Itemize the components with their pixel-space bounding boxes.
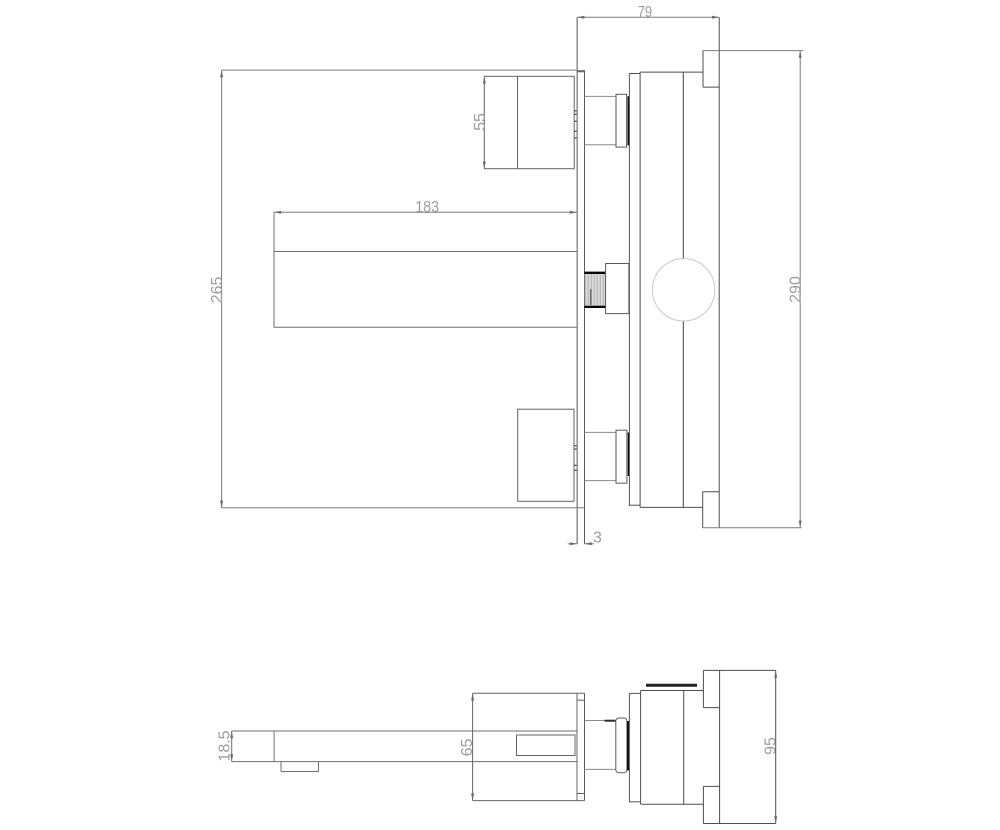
svg-text:79: 79 (638, 4, 653, 21)
svg-text:290: 290 (788, 276, 805, 303)
svg-text:265: 265 (209, 276, 226, 303)
svg-text:183: 183 (415, 199, 439, 216)
svg-text:65: 65 (459, 738, 476, 756)
svg-text:55: 55 (472, 113, 489, 131)
svg-text:95: 95 (763, 737, 780, 755)
svg-text:3: 3 (593, 530, 602, 547)
svg-text:18.5: 18.5 (217, 730, 234, 761)
